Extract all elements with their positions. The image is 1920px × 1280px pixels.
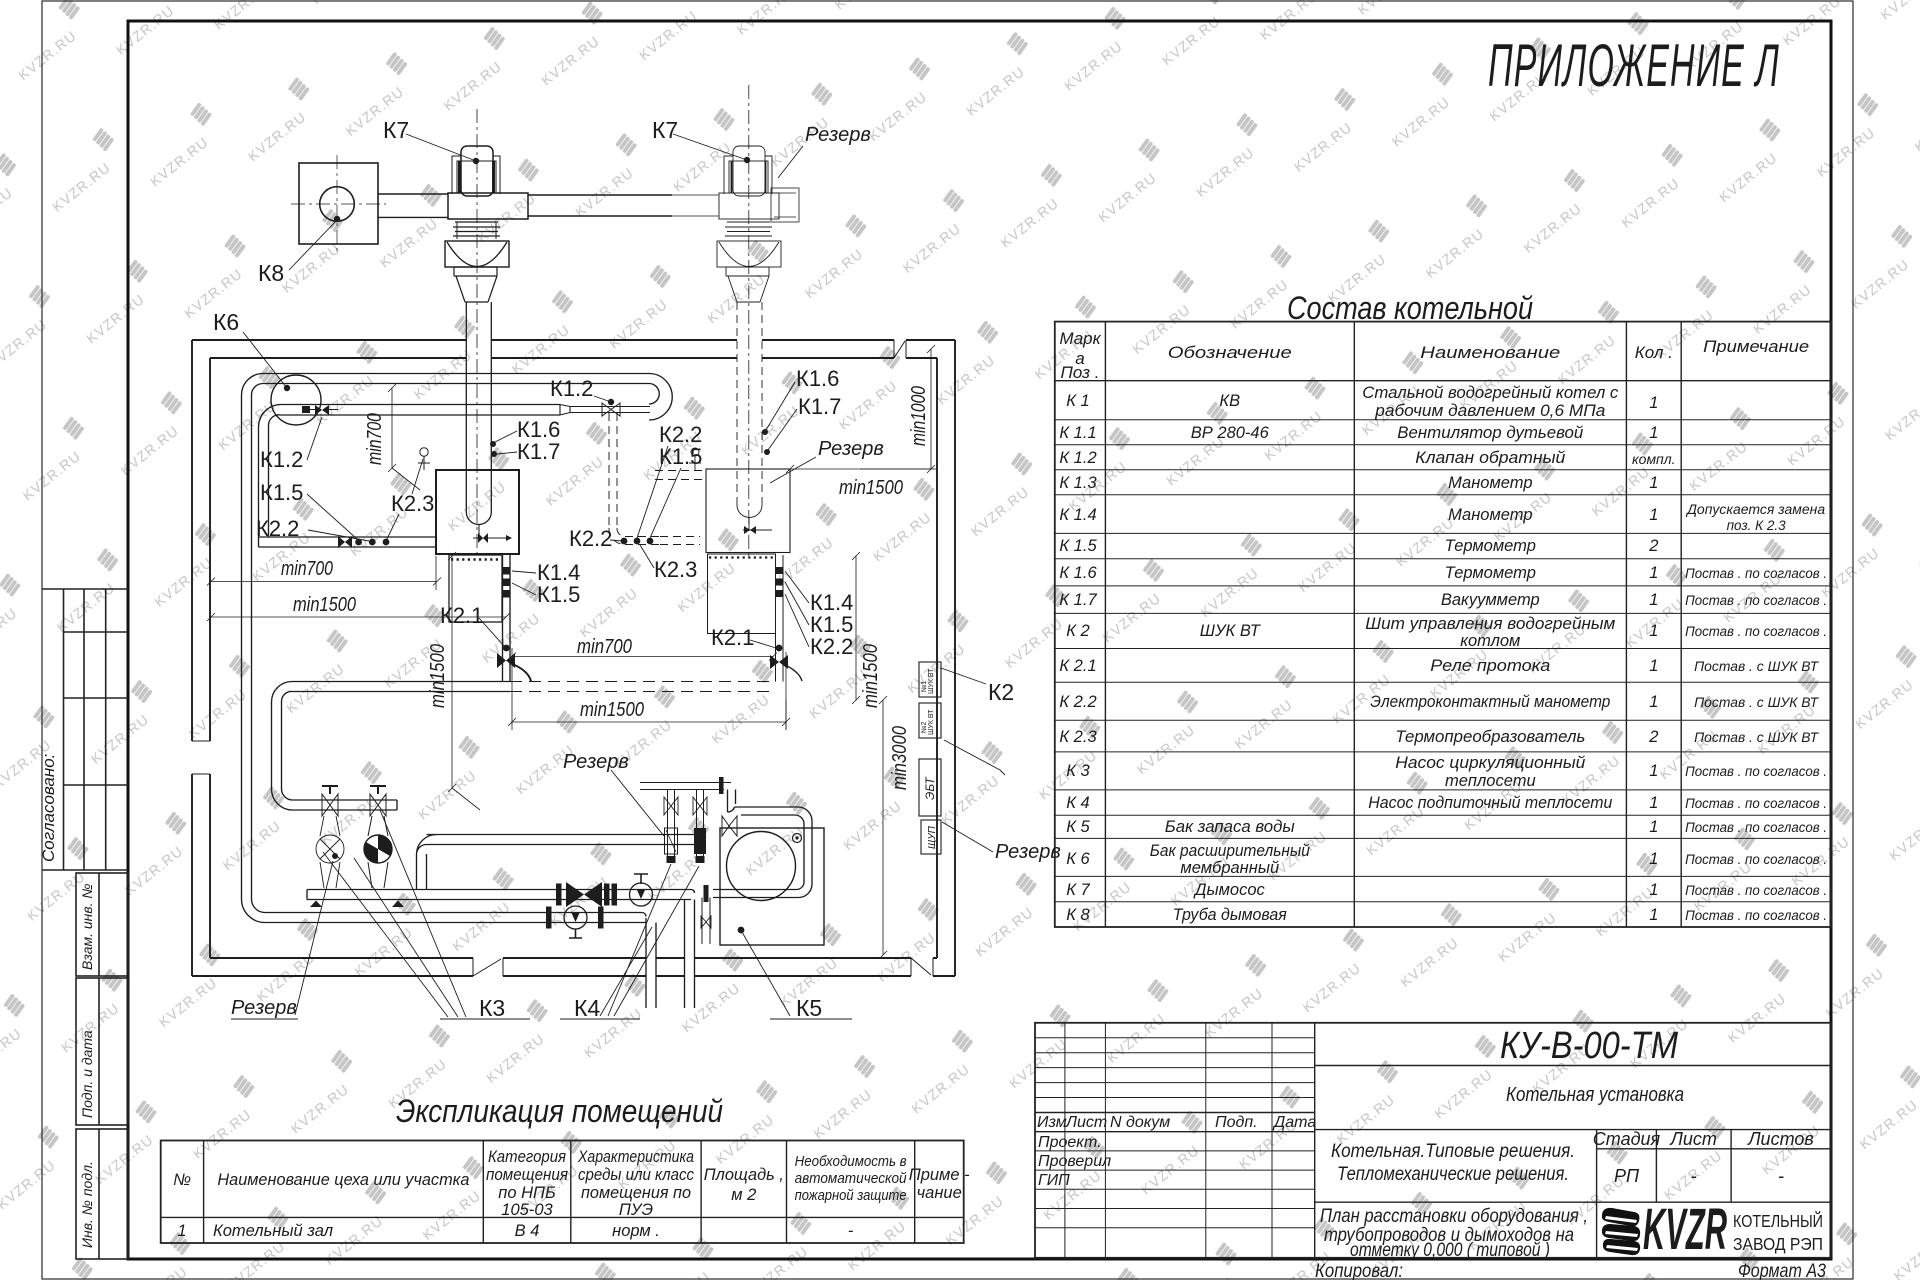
svg-text:Шит управления водогрейным: Шит управления водогрейным — [1365, 615, 1615, 633]
svg-text:РП: РП — [1614, 1166, 1640, 1186]
svg-text:Категория: Категория — [488, 1148, 566, 1166]
svg-text:105-03: 105-03 — [501, 1201, 553, 1219]
svg-text:Наименование цеха или участка: Наименование цеха или участка — [217, 1171, 469, 1189]
svg-text:1: 1 — [1649, 881, 1658, 899]
svg-text:Постав . по согласов .: Постав . по согласов . — [1685, 764, 1827, 779]
svg-text:К 6: К 6 — [1066, 850, 1090, 868]
svg-text:Необходимость в: Необходимость в — [795, 1153, 907, 1170]
svg-text:Постав . по согласов .: Постав . по согласов . — [1685, 593, 1827, 608]
svg-text:Приме -: Приме - — [909, 1166, 970, 1184]
svg-text:Постав . по согласов .: Постав . по согласов . — [1685, 820, 1827, 835]
svg-text:1: 1 — [1649, 693, 1658, 711]
svg-text:Вентилятор дутьевой: Вентилятор дутьевой — [1397, 424, 1583, 442]
svg-text:В 4: В 4 — [515, 1222, 540, 1240]
svg-text:1: 1 — [1649, 657, 1658, 675]
svg-text:Вакуумметр: Вакуумметр — [1441, 591, 1540, 609]
svg-text:Резерв: Резерв — [231, 997, 297, 1019]
svg-text:К1.5: К1.5 — [537, 582, 580, 607]
svg-text:Термопреобразователь: Термопреобразователь — [1395, 728, 1585, 746]
svg-text:Постав . с ШУК ВТ: Постав . с ШУК ВТ — [1694, 695, 1820, 710]
svg-text:min1500: min1500 — [580, 699, 644, 721]
svg-text:К2.3: К2.3 — [654, 557, 697, 582]
svg-text:К 1.3: К 1.3 — [1059, 474, 1097, 492]
svg-text:Постав . с ШУК ВТ: Постав . с ШУК ВТ — [1694, 730, 1820, 745]
svg-text:ШУК ВТ: ШУК ВТ — [1200, 622, 1262, 640]
svg-text:Примечание: Примечание — [1703, 337, 1809, 356]
svg-text:-: - — [1691, 1166, 1697, 1186]
svg-text:К8: К8 — [258, 260, 284, 286]
svg-text:ШУК ВТ: ШУК ВТ — [928, 709, 935, 735]
svg-text:Резерв: Резерв — [563, 751, 629, 773]
svg-text:Тепломеханические решения.: Тепломеханические решения. — [1337, 1164, 1569, 1185]
svg-text:К7: К7 — [383, 117, 409, 143]
svg-text:К 2.1: К 2.1 — [1059, 657, 1096, 675]
svg-text:KVZR: KVZR — [1643, 1197, 1727, 1262]
svg-text:№: № — [173, 1171, 191, 1189]
svg-text:мембранный: мембранный — [1180, 859, 1279, 877]
svg-text:min700: min700 — [281, 558, 333, 580]
svg-text:Поз .: Поз . — [1061, 363, 1100, 382]
svg-text:К2.2: К2.2 — [810, 634, 853, 659]
svg-text:1: 1 — [1649, 474, 1658, 492]
svg-text:Обозначение: Обозначение — [1168, 343, 1292, 362]
svg-text:1: 1 — [177, 1222, 186, 1240]
svg-text:К 1.2: К 1.2 — [1059, 449, 1096, 467]
svg-text:Манометр: Манометр — [1448, 474, 1532, 492]
svg-text:Постав . по согласов .: Постав . по согласов . — [1685, 852, 1827, 867]
svg-text:min1500: min1500 — [293, 594, 356, 616]
svg-text:К1.7: К1.7 — [517, 439, 560, 464]
svg-text:min1000: min1000 — [908, 386, 930, 446]
svg-text:1: 1 — [1649, 564, 1658, 582]
svg-text:№1: №1 — [921, 680, 928, 692]
svg-text:К6: К6 — [213, 309, 239, 335]
svg-text:по НПБ: по НПБ — [498, 1184, 556, 1202]
svg-text:К7: К7 — [652, 117, 678, 143]
svg-text:Стадия: Стадия — [1593, 1129, 1661, 1149]
svg-text:автоматической: автоматической — [795, 1170, 908, 1187]
svg-text:Подп.: Подп. — [1215, 1114, 1258, 1131]
svg-text:min3000: min3000 — [889, 726, 911, 790]
svg-text:ГИП: ГИП — [1038, 1172, 1070, 1189]
svg-text:-: - — [848, 1222, 854, 1240]
svg-text:Постав . по согласов .: Постав . по согласов . — [1685, 796, 1827, 811]
svg-text:1: 1 — [1649, 424, 1658, 442]
svg-text:Постав . по согласов .: Постав . по согласов . — [1685, 908, 1827, 923]
svg-text:Состав котельной: Состав котельной — [1287, 290, 1533, 326]
svg-text:рабочим давлением 0,6 МПа: рабочим давлением 0,6 МПа — [1374, 402, 1605, 420]
svg-text:1: 1 — [1649, 762, 1658, 780]
svg-text:К2.2: К2.2 — [256, 516, 299, 541]
svg-text:Копировал:: Копировал: — [1315, 1261, 1403, 1280]
svg-text:К2: К2 — [988, 679, 1014, 705]
svg-text:Характеристика: Характеристика — [577, 1148, 694, 1166]
svg-text:К 1.6: К 1.6 — [1059, 564, 1097, 582]
svg-text:Электроконтактный манометр: Электроконтактный манометр — [1370, 693, 1610, 711]
svg-text:Резерв: Резерв — [805, 124, 871, 146]
svg-text:1: 1 — [1649, 794, 1658, 812]
svg-text:Взам. инв. №: Взам. инв. № — [79, 883, 95, 970]
svg-text:К 1: К 1 — [1066, 392, 1090, 410]
svg-text:Лист: Лист — [1065, 1114, 1107, 1131]
svg-text:К5: К5 — [796, 995, 822, 1021]
svg-text:К2.2: К2.2 — [569, 526, 612, 551]
svg-text:План расстановки оборудования: План расстановки оборудования , — [1320, 1206, 1588, 1227]
svg-text:К1.2: К1.2 — [550, 376, 593, 401]
svg-text:К 1.7: К 1.7 — [1059, 591, 1097, 609]
svg-text:№2: №2 — [921, 721, 928, 733]
svg-text:Кол .: Кол . — [1635, 343, 1673, 362]
svg-text:Дата: Дата — [1272, 1114, 1316, 1131]
svg-text:1: 1 — [1649, 591, 1658, 609]
svg-text:Согласовано:: Согласовано: — [39, 753, 58, 862]
svg-text:Котельная установка: Котельная установка — [1506, 1084, 1684, 1106]
svg-text:пожарной защите: пожарной защите — [795, 1187, 907, 1204]
svg-text:2: 2 — [1648, 537, 1658, 555]
svg-text:Термометр: Термометр — [1445, 537, 1536, 555]
svg-text:Резерв: Резерв — [818, 438, 884, 460]
svg-text:КУ-В-00-ТМ: КУ-В-00-ТМ — [1500, 1025, 1678, 1067]
svg-text:К 1.5: К 1.5 — [1059, 537, 1097, 555]
svg-text:Экспликация помещений: Экспликация помещений — [396, 1093, 723, 1129]
svg-text:К2.1: К2.1 — [440, 603, 483, 628]
svg-text:К1.5: К1.5 — [260, 480, 303, 505]
svg-text:Стальной водогрейный котел с: Стальной водогрейный котел с — [1362, 384, 1619, 402]
svg-text:min1500: min1500 — [860, 644, 882, 708]
svg-text:1: 1 — [1649, 622, 1658, 640]
svg-text:Реле протока: Реле протока — [1430, 657, 1550, 675]
svg-text:Подп. и дата: Подп. и дата — [79, 1030, 95, 1118]
svg-text:м 2: м 2 — [731, 1186, 756, 1204]
svg-text:Резерв: Резерв — [995, 841, 1061, 863]
svg-text:Листов: Листов — [1747, 1129, 1814, 1149]
svg-text:К 8: К 8 — [1066, 906, 1090, 924]
svg-text:1: 1 — [1649, 850, 1658, 868]
svg-text:котлом: котлом — [1460, 632, 1520, 650]
svg-text:Постав . по согласов .: Постав . по согласов . — [1685, 566, 1827, 581]
svg-text:Наименование: Наименование — [1420, 343, 1560, 362]
svg-text:min700: min700 — [577, 636, 632, 658]
svg-text:1: 1 — [1649, 906, 1658, 924]
svg-text:1: 1 — [1649, 818, 1658, 836]
svg-text:min700: min700 — [364, 413, 386, 465]
svg-text:Марк: Марк — [1059, 329, 1101, 348]
svg-text:Площадь ,: Площадь , — [704, 1166, 784, 1184]
svg-text:1: 1 — [1649, 394, 1658, 412]
svg-text:норм .: норм . — [612, 1222, 660, 1240]
svg-text:К 2.2: К 2.2 — [1059, 693, 1096, 711]
svg-text:помещения по: помещения по — [581, 1184, 691, 1202]
svg-text:К 1.4: К 1.4 — [1059, 506, 1096, 524]
svg-text:ПРИЛОЖЕНИЕ Л: ПРИЛОЖЕНИЕ Л — [1488, 32, 1780, 99]
svg-text:отметку 0,000 ( типовой ): отметку 0,000 ( типовой ) — [1350, 1240, 1550, 1261]
svg-text:К 5: К 5 — [1066, 818, 1090, 836]
svg-text:К 1.1: К 1.1 — [1059, 424, 1096, 442]
svg-text:Труба дымовая: Труба дымовая — [1173, 906, 1287, 924]
svg-text:Котельный зал: Котельный зал — [213, 1222, 333, 1240]
svg-text:Формат А3: Формат А3 — [1738, 1261, 1826, 1280]
svg-text:Допускается замена: Допускается замена — [1685, 502, 1826, 517]
svg-text:Постав . с ШУК ВТ: Постав . с ШУК ВТ — [1694, 659, 1820, 674]
svg-text:Лист: Лист — [1670, 1129, 1717, 1149]
svg-text:min1500: min1500 — [839, 477, 903, 499]
svg-text:ВР 280-46: ВР 280-46 — [1191, 424, 1270, 442]
svg-text:Инв. № подл.: Инв. № подл. — [79, 1161, 95, 1248]
svg-text:К4: К4 — [574, 995, 600, 1021]
svg-text:К 4: К 4 — [1066, 794, 1090, 812]
svg-text:КВ: КВ — [1219, 392, 1240, 410]
svg-text:К1.7: К1.7 — [798, 394, 841, 419]
svg-text:К 7: К 7 — [1066, 881, 1090, 899]
svg-text:N докум: N докум — [1110, 1114, 1170, 1131]
svg-text:Проверил: Проверил — [1038, 1153, 1111, 1170]
svg-text:компл.: компл. — [1632, 451, 1675, 467]
svg-text:Насос циркуляционный: Насос циркуляционный — [1395, 754, 1585, 772]
svg-text:1: 1 — [1649, 506, 1658, 524]
svg-text:К2.3: К2.3 — [391, 491, 434, 516]
svg-text:ШУК ВТ: ШУК ВТ — [928, 668, 935, 694]
svg-text:К 2.3: К 2.3 — [1059, 728, 1097, 746]
svg-text:-: - — [1778, 1166, 1784, 1186]
svg-text:Проект.: Проект. — [1038, 1134, 1102, 1151]
svg-text:ЭБТ: ЭБТ — [923, 776, 937, 800]
svg-text:К1.6: К1.6 — [796, 366, 839, 391]
svg-text:Бак запаса воды: Бак запаса воды — [1165, 818, 1295, 836]
svg-text:ЩУП: ЩУП — [927, 825, 938, 849]
svg-text:среды или класс: среды или класс — [578, 1166, 695, 1184]
svg-text:ПУЭ: ПУЭ — [619, 1201, 653, 1219]
svg-text:Бак расширительный: Бак расширительный — [1150, 842, 1310, 860]
svg-text:2: 2 — [1648, 728, 1658, 746]
svg-text:ЗАВОД РЭП: ЗАВОД РЭП — [1733, 1234, 1823, 1254]
svg-text:теплосети: теплосети — [1445, 772, 1536, 790]
svg-text:Постав . по согласов .: Постав . по согласов . — [1685, 883, 1827, 898]
svg-text:Дымосос: Дымосос — [1193, 881, 1266, 899]
svg-text:Клапан обратный: Клапан обратный — [1415, 449, 1565, 467]
svg-text:Насос подпиточный теплосети: Насос подпиточный теплосети — [1368, 794, 1612, 812]
svg-text:чание: чание — [917, 1184, 962, 1202]
svg-text:К 3: К 3 — [1066, 762, 1090, 780]
svg-text:Постав . по согласов .: Постав . по согласов . — [1685, 624, 1827, 639]
svg-text:К 2: К 2 — [1066, 622, 1090, 640]
svg-text:min1500: min1500 — [427, 644, 449, 708]
svg-text:КОТЕЛЬНЫЙ: КОТЕЛЬНЫЙ — [1733, 1210, 1823, 1231]
svg-text:помещения: помещения — [486, 1166, 568, 1184]
svg-text:поз. К 2.3: поз. К 2.3 — [1727, 518, 1787, 533]
svg-text:Изм: Изм — [1037, 1114, 1067, 1131]
svg-text:К2.1: К2.1 — [711, 625, 754, 650]
svg-text:Котельная.Типовые решения.: Котельная.Типовые решения. — [1331, 1141, 1575, 1162]
svg-text:К1.2: К1.2 — [260, 447, 303, 472]
svg-text:Манометр: Манометр — [1448, 506, 1532, 524]
svg-text:К3: К3 — [479, 995, 505, 1021]
svg-text:Термометр: Термометр — [1445, 564, 1536, 582]
